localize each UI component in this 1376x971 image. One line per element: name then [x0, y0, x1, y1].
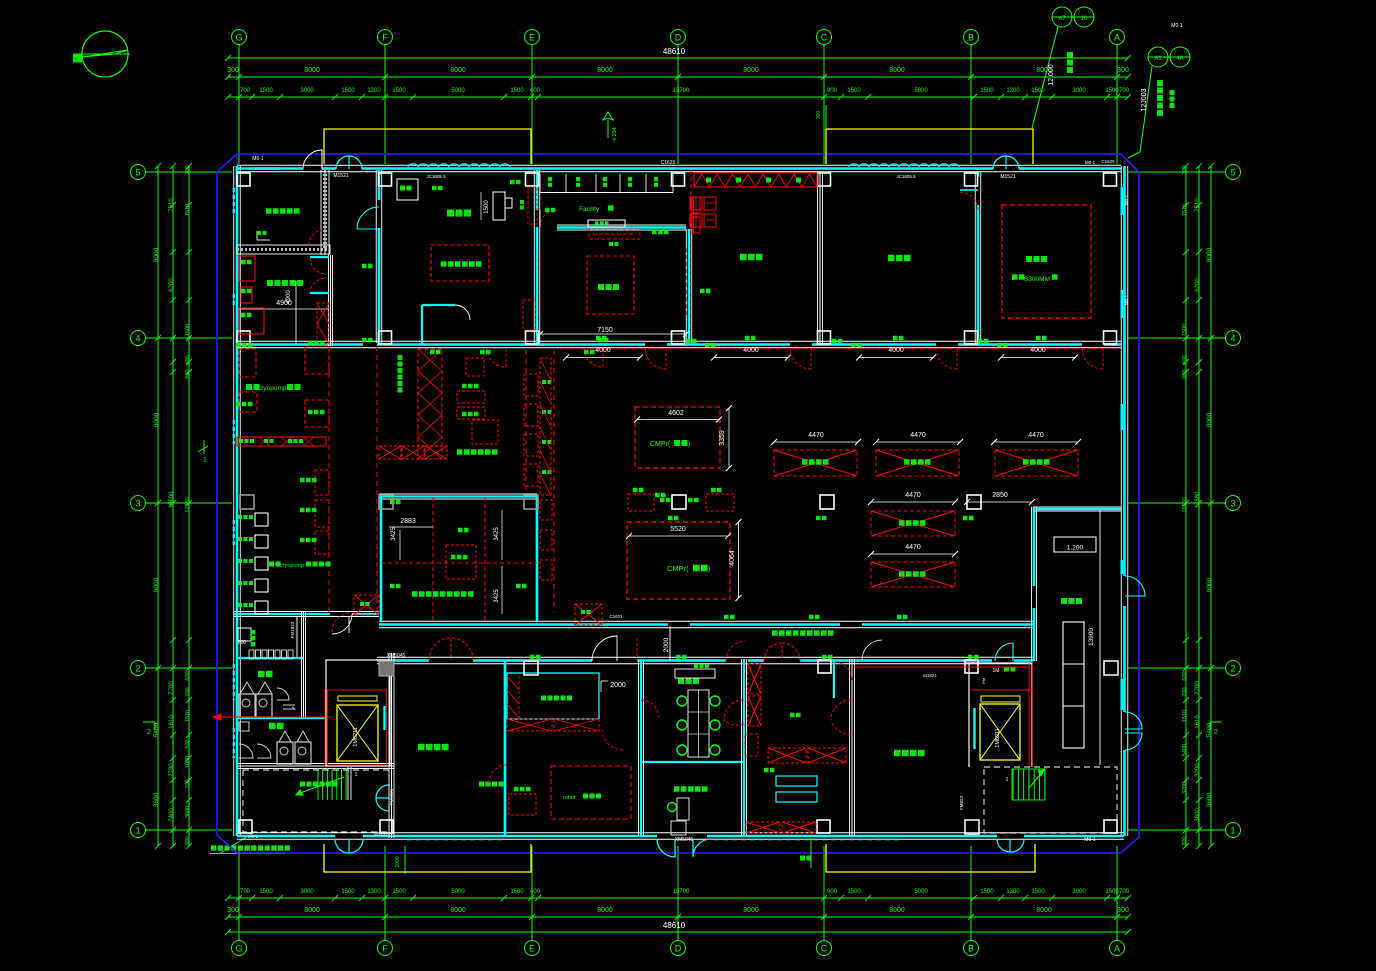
svg-text:-4.234: -4.234: [612, 127, 618, 143]
svg-text:3425: 3425: [494, 589, 500, 603]
svg-text:3000: 3000: [300, 88, 314, 94]
svg-text:9000: 9000: [153, 247, 160, 262]
svg-text:8000: 8000: [450, 67, 466, 74]
svg-text:1510: 1510: [1182, 710, 1188, 722]
svg-text:700: 700: [240, 889, 251, 895]
svg-text:4602: 4602: [668, 410, 684, 417]
svg-text:1: 1: [1006, 777, 1009, 783]
svg-text:700: 700: [240, 88, 251, 94]
svg-text:3600: 3600: [1206, 792, 1213, 807]
svg-text:300: 300: [1182, 165, 1188, 174]
svg-text:9000: 9000: [1206, 247, 1213, 262]
svg-text:15700: 15700: [673, 889, 690, 895]
svg-text:2000: 2000: [663, 637, 670, 652]
svg-text:1500: 1500: [1105, 889, 1119, 895]
svg-text:700: 700: [185, 687, 191, 696]
svg-text:600: 600: [185, 369, 191, 378]
svg-text:JC1605.5: JC1605.5: [426, 174, 446, 179]
svg-text:FM: FM: [981, 678, 986, 684]
svg-text:CMPr(: CMPr(: [650, 441, 671, 448]
svg-text:9000: 9000: [1206, 412, 1213, 427]
svg-text:3: 3: [135, 499, 140, 509]
svg-text:10: 10: [1081, 16, 1088, 22]
svg-text:1M6211: 1M6211: [353, 727, 359, 746]
svg-text:C1625: C1625: [661, 160, 676, 166]
svg-text:2780: 2780: [169, 763, 175, 777]
svg-text:6200: 6200: [1195, 278, 1201, 292]
svg-text:1300: 1300: [1006, 88, 1020, 94]
svg-text:2000: 2000: [395, 856, 401, 867]
svg-text:JC1605.5: JC1605.5: [896, 174, 916, 179]
svg-text:XM5045: XM5045: [675, 837, 694, 843]
svg-text:5400: 5400: [153, 722, 160, 737]
svg-text:M1521: M1521: [333, 173, 349, 179]
svg-text:FM823: FM823: [959, 796, 964, 811]
svg-text:3: 3: [1230, 499, 1235, 509]
svg-text:1: 1: [135, 826, 140, 836]
svg-text:9000: 9000: [153, 577, 160, 592]
svg-text:700: 700: [1119, 889, 1130, 895]
svg-text:C: C: [821, 33, 828, 43]
svg-text:A7: A7: [1058, 16, 1066, 22]
svg-text:4470: 4470: [1028, 432, 1044, 439]
svg-text:7510: 7510: [169, 198, 175, 212]
svg-text:1500: 1500: [392, 889, 406, 895]
svg-text:7150: 7150: [597, 327, 613, 334]
svg-text:7510: 7510: [185, 204, 191, 216]
svg-text:12.000: 12.000: [1048, 64, 1055, 86]
svg-text:7510: 7510: [1182, 204, 1188, 216]
svg-text:Facility: Facility: [579, 206, 600, 213]
svg-text:M1821: M1821: [923, 673, 937, 678]
svg-text:1500: 1500: [341, 889, 355, 895]
svg-text:17380: 17380: [185, 497, 191, 512]
svg-text:2883: 2883: [400, 518, 416, 525]
svg-text:4470: 4470: [808, 432, 824, 439]
svg-text:600: 600: [238, 640, 247, 646]
svg-text:15700: 15700: [673, 88, 690, 94]
svg-text:3000: 3000: [300, 889, 314, 895]
svg-text:1500: 1500: [980, 88, 994, 94]
svg-text:A: A: [1114, 33, 1120, 43]
svg-text:1500: 1500: [1031, 88, 1045, 94]
svg-text:1300: 1300: [367, 889, 381, 895]
svg-text:3000: 3000: [1072, 889, 1086, 895]
svg-text:A: A: [1114, 944, 1120, 954]
svg-text:B: B: [968, 944, 974, 954]
svg-text:8000: 8000: [889, 907, 905, 914]
svg-text:2: 2: [1214, 729, 1218, 736]
svg-text:2000: 2000: [610, 682, 626, 689]
svg-text:8000: 8000: [743, 907, 759, 914]
svg-text:700: 700: [1119, 88, 1130, 94]
svg-text:4064: 4064: [729, 550, 736, 566]
svg-text:D: D: [675, 944, 682, 954]
svg-text:8000: 8000: [597, 67, 613, 74]
svg-text:1500: 1500: [392, 88, 406, 94]
svg-text:5000: 5000: [451, 889, 465, 895]
svg-text:1500: 1500: [185, 324, 191, 336]
svg-text:3200: 3200: [1195, 763, 1201, 777]
svg-text:M0-1: M0-1: [252, 156, 264, 162]
svg-text:F: F: [382, 944, 388, 954]
svg-text:300: 300: [185, 836, 191, 845]
svg-text:1300: 1300: [1006, 889, 1020, 895]
svg-text:3600: 3600: [1195, 808, 1201, 822]
svg-text:400: 400: [530, 88, 541, 94]
svg-text:1610: 1610: [169, 715, 175, 729]
svg-text:4470: 4470: [905, 544, 921, 551]
svg-text:12J003: 12J003: [1141, 88, 1148, 111]
svg-text:2850: 2850: [992, 492, 1008, 499]
svg-text:1: 1: [1230, 826, 1235, 836]
svg-text:8000: 8000: [889, 67, 905, 74]
svg-text:1500: 1500: [1182, 324, 1188, 336]
svg-text:13900: 13900: [1088, 628, 1095, 646]
svg-text:1510: 1510: [185, 710, 191, 722]
svg-text:600: 600: [185, 671, 191, 680]
svg-text:G: G: [235, 944, 242, 954]
svg-text:1500: 1500: [847, 88, 861, 94]
svg-text:4900: 4900: [286, 290, 292, 304]
svg-text:2: 2: [147, 729, 151, 736]
svg-text:700: 700: [185, 779, 191, 788]
svg-text:4470: 4470: [905, 492, 921, 499]
svg-text:E: E: [529, 33, 535, 43]
svg-text:4000: 4000: [888, 347, 904, 354]
svg-text:9000: 9000: [1206, 577, 1213, 592]
svg-text:5: 5: [1230, 168, 1235, 178]
svg-text:A1: A1: [1154, 56, 1162, 62]
svg-text:XM5045: XM5045: [387, 653, 406, 659]
svg-text:300: 300: [1117, 907, 1129, 914]
svg-text:E: E: [529, 944, 535, 954]
svg-text:5: 5: [135, 168, 140, 178]
svg-text:3600: 3600: [153, 792, 160, 807]
svg-text:400: 400: [1182, 355, 1188, 364]
svg-text:900: 900: [827, 88, 838, 94]
svg-text:3425: 3425: [494, 527, 500, 541]
svg-text:cryopump: cryopump: [258, 385, 287, 392]
svg-text:8000: 8000: [743, 67, 759, 74]
svg-text:9000: 9000: [153, 412, 160, 427]
svg-text:1500: 1500: [510, 889, 524, 895]
svg-text:3200: 3200: [1182, 782, 1188, 794]
svg-text:500: 500: [185, 739, 191, 748]
svg-text:): ): [688, 441, 690, 448]
svg-text:F: F: [382, 33, 388, 43]
svg-text:1610: 1610: [1195, 715, 1201, 729]
svg-text:M0-1: M0-1: [1084, 837, 1096, 843]
svg-text:M0-1: M0-1: [1124, 194, 1129, 205]
svg-text:M0-1: M0-1: [1171, 23, 1183, 29]
svg-text:4000: 4000: [743, 347, 759, 354]
svg-text:M1521: M1521: [1000, 174, 1016, 180]
svg-text:2700: 2700: [1195, 681, 1201, 695]
svg-text:3425: 3425: [391, 527, 397, 541]
svg-text:C: C: [821, 944, 828, 954]
svg-text:1500: 1500: [484, 200, 490, 214]
svg-text:1500: 1500: [259, 889, 273, 895]
svg-text:2: 2: [1230, 664, 1235, 674]
svg-text:3359: 3359: [719, 430, 726, 446]
svg-text:G: G: [235, 33, 242, 43]
svg-text:8000: 8000: [1036, 907, 1052, 914]
svg-text:16600: 16600: [1182, 497, 1188, 512]
svg-text:8000: 8000: [597, 907, 613, 914]
svg-text:1.200: 1.200: [1067, 545, 1084, 552]
svg-text:1300: 1300: [367, 88, 381, 94]
svg-text:1500: 1500: [341, 88, 355, 94]
svg-text:48610: 48610: [663, 921, 686, 930]
svg-text:1500: 1500: [980, 889, 994, 895]
svg-text:M0-1: M0-1: [1085, 160, 1096, 165]
svg-text:5400: 5400: [1182, 744, 1188, 756]
svg-text:1500: 1500: [259, 88, 273, 94]
svg-text:200: 200: [185, 165, 191, 174]
svg-text:1500: 1500: [847, 889, 861, 895]
svg-text:robot: robot: [563, 795, 576, 801]
svg-text:4470: 4470: [910, 432, 926, 439]
svg-text:17380: 17380: [1195, 491, 1201, 508]
svg-text:300: 300: [227, 907, 239, 914]
svg-text:M0-1: M0-1: [248, 834, 259, 839]
svg-text:FM5021: FM5021: [389, 788, 394, 805]
svg-text:3000: 3000: [1072, 88, 1086, 94]
svg-text:900: 900: [827, 889, 838, 895]
svg-text:5800: 5800: [914, 88, 928, 94]
svg-text:C1621: C1621: [609, 614, 623, 619]
svg-text:1M6211: 1M6211: [995, 728, 1001, 747]
svg-text:CMPr(: CMPr(: [667, 564, 689, 573]
svg-text:300: 300: [816, 111, 822, 120]
svg-text:C1625: C1625: [1101, 159, 1115, 164]
svg-text:5520: 5520: [670, 526, 686, 533]
svg-text:4: 4: [1230, 334, 1235, 344]
svg-text:2400: 2400: [169, 808, 175, 822]
svg-text:400: 400: [185, 355, 191, 364]
svg-text:1: 1: [203, 457, 207, 464]
svg-text:4A: 4A: [1176, 56, 1183, 62]
svg-text:cryopump: cryopump: [280, 563, 304, 569]
svg-text:7510: 7510: [1195, 198, 1201, 212]
svg-text:1M: 1M: [993, 668, 1000, 674]
svg-text:1500: 1500: [1031, 889, 1045, 895]
svg-text:1500: 1500: [1105, 88, 1119, 94]
svg-text:1: 1: [355, 772, 358, 778]
svg-text:48610: 48610: [663, 47, 686, 56]
svg-text:600: 600: [1182, 671, 1188, 680]
svg-text:4000: 4000: [1030, 347, 1046, 354]
svg-text:400: 400: [530, 889, 541, 895]
svg-text:700: 700: [1182, 687, 1188, 696]
svg-text:1080: 1080: [185, 756, 191, 768]
svg-text:8000: 8000: [450, 907, 466, 914]
svg-text:16600: 16600: [169, 491, 175, 508]
svg-text:4: 4: [135, 334, 140, 344]
svg-text:M0-1: M0-1: [1124, 294, 1129, 305]
svg-text:B: B: [968, 33, 974, 43]
svg-text:5000: 5000: [451, 88, 465, 94]
svg-text:M1521: M1521: [374, 832, 388, 837]
svg-text:D: D: [675, 33, 682, 43]
svg-text:2: 2: [135, 664, 140, 674]
svg-text:FM1823: FM1823: [290, 621, 295, 638]
svg-text:8000: 8000: [304, 67, 320, 74]
svg-text:5000: 5000: [914, 889, 928, 895]
svg-text:S300MM: S300MM: [1024, 276, 1050, 283]
svg-text:300: 300: [227, 67, 239, 74]
svg-text:1500: 1500: [510, 88, 524, 94]
svg-text:600: 600: [1182, 369, 1188, 378]
svg-text:300: 300: [1117, 67, 1129, 74]
svg-text:300: 300: [1182, 836, 1188, 845]
svg-text:2700: 2700: [169, 681, 175, 695]
svg-text:3600: 3600: [185, 806, 191, 818]
svg-text:6200: 6200: [169, 278, 175, 292]
svg-text:8000: 8000: [304, 907, 320, 914]
